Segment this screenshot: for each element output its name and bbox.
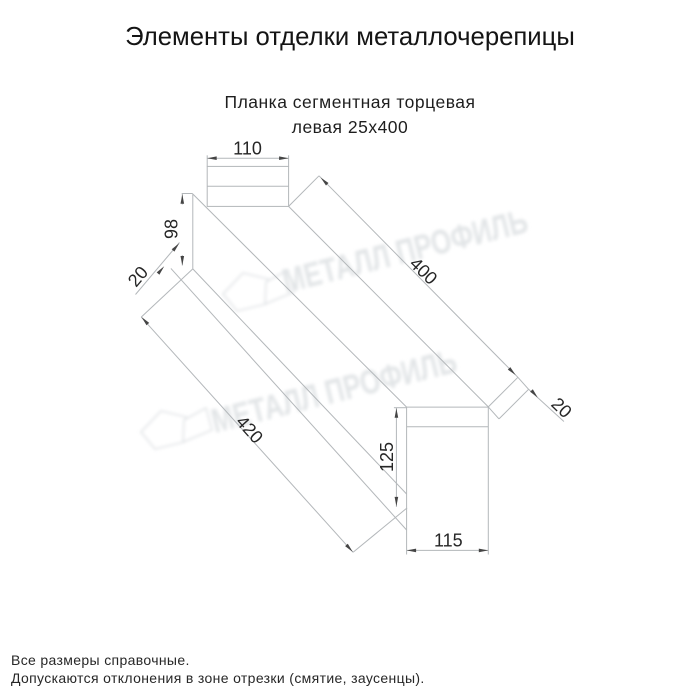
svg-text:110: 110 [233,139,262,159]
svg-text:98: 98 [162,219,182,239]
svg-text:125: 125 [377,442,397,472]
svg-text:20: 20 [124,262,152,290]
svg-text:20: 20 [547,394,575,422]
svg-text:115: 115 [434,531,463,551]
svg-text:МЕТАЛЛ ПРОФИЛЬ: МЕТАЛЛ ПРОФИЛЬ [279,203,532,301]
